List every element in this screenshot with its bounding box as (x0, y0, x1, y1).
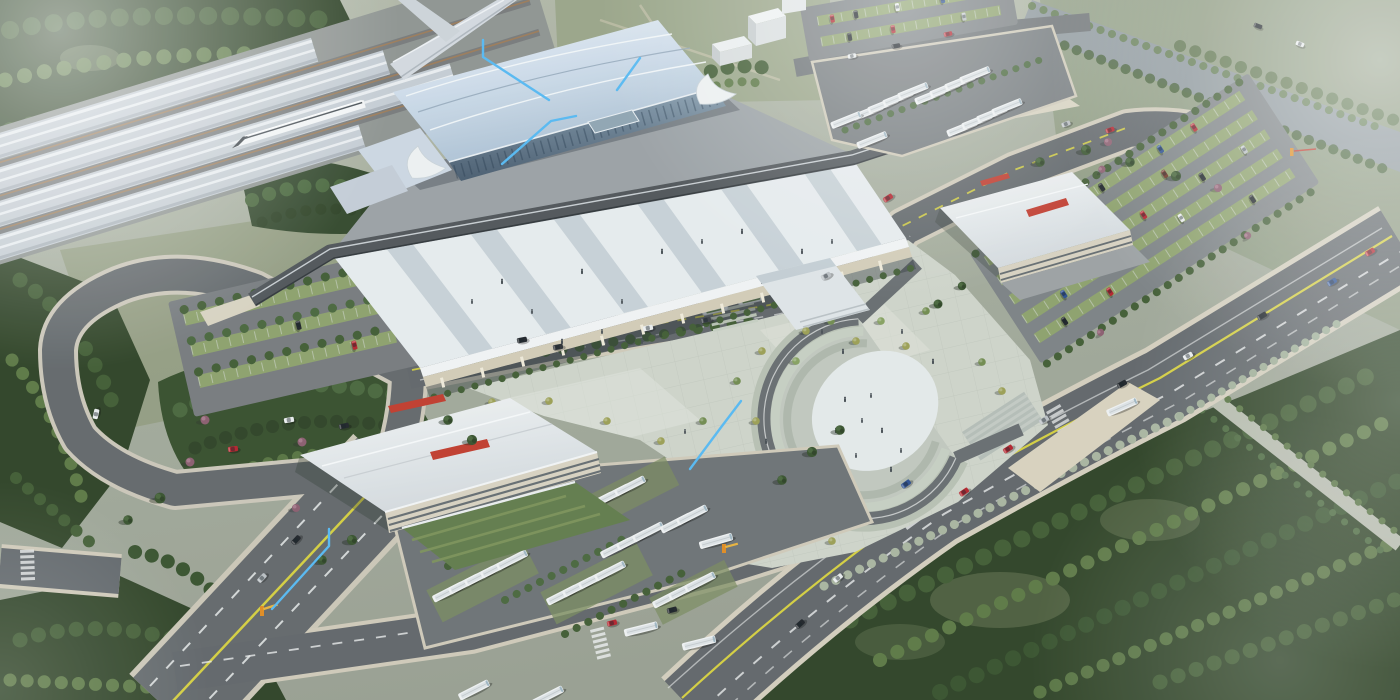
atmospheric-haze (0, 0, 1400, 700)
aerial-render-canvas (0, 0, 1400, 700)
